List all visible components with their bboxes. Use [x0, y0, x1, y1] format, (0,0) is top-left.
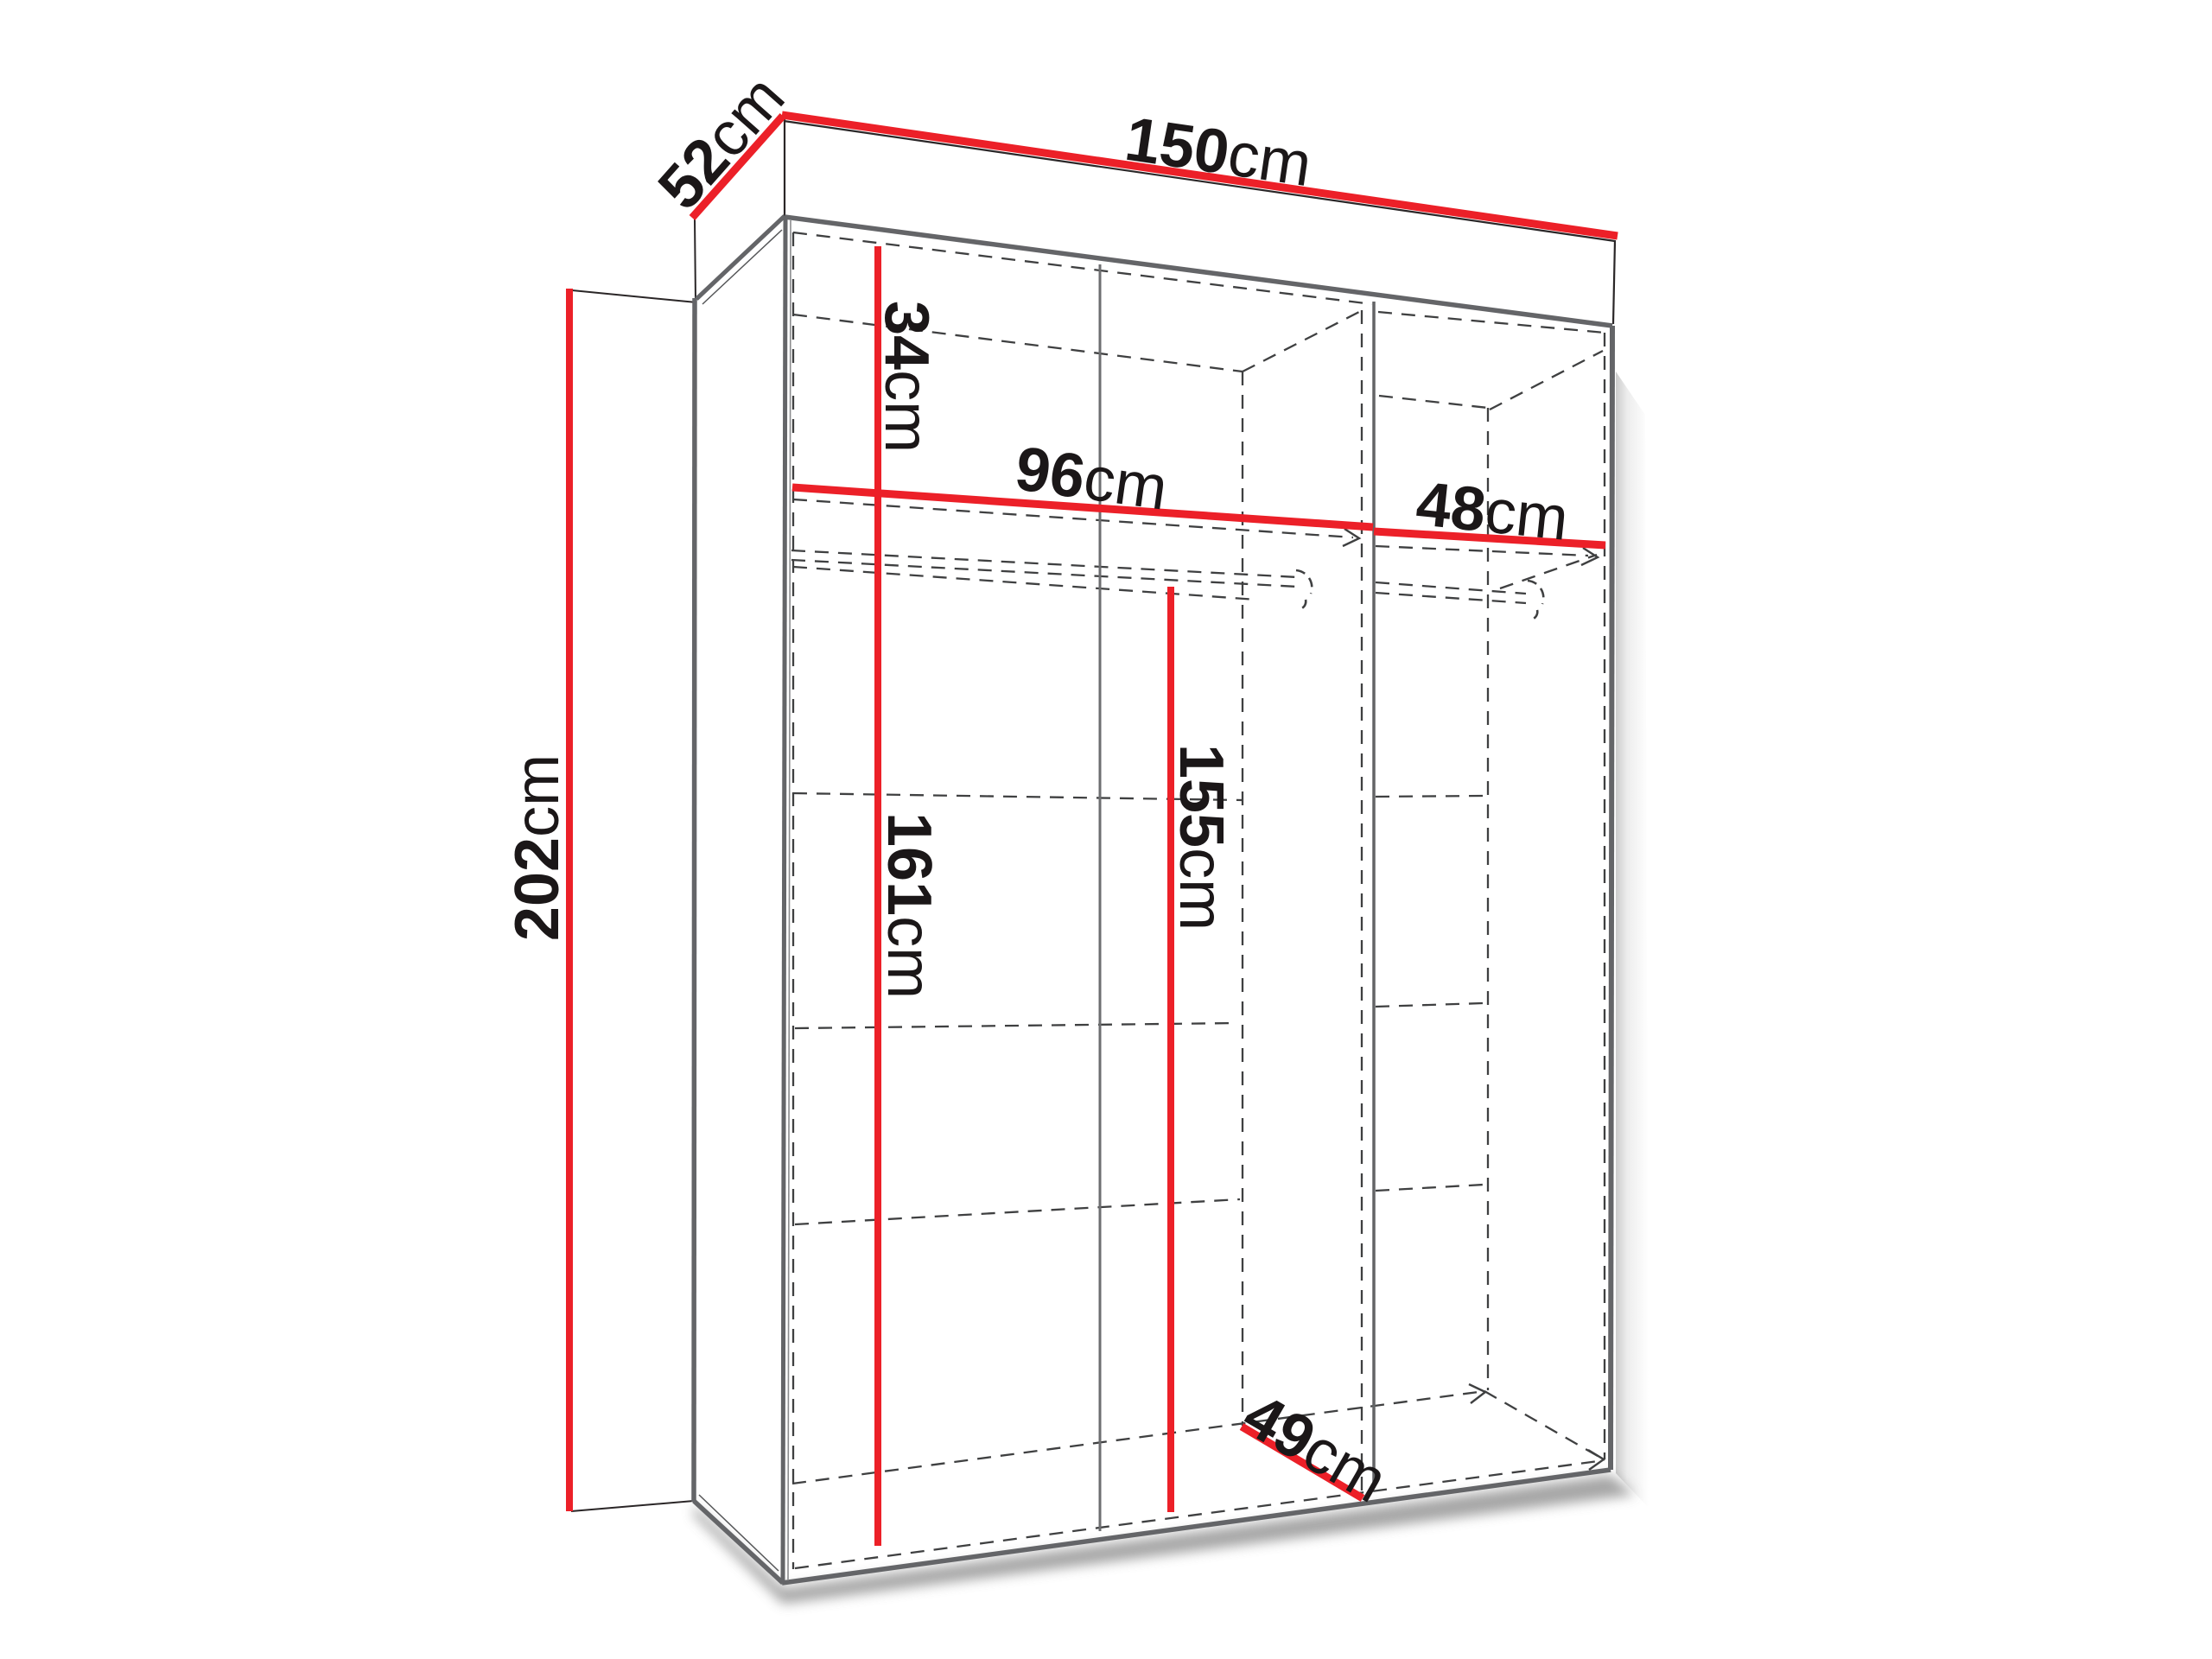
- svg-text:34cm: 34cm: [872, 301, 941, 453]
- svg-text:150cm: 150cm: [1121, 105, 1315, 200]
- svg-text:161cm: 161cm: [874, 812, 944, 999]
- svg-text:155cm: 155cm: [1166, 744, 1236, 931]
- svg-text:96cm: 96cm: [1011, 434, 1171, 524]
- svg-text:202cm: 202cm: [503, 754, 572, 941]
- svg-text:48cm: 48cm: [1413, 469, 1571, 554]
- svg-text:52cm: 52cm: [645, 63, 798, 223]
